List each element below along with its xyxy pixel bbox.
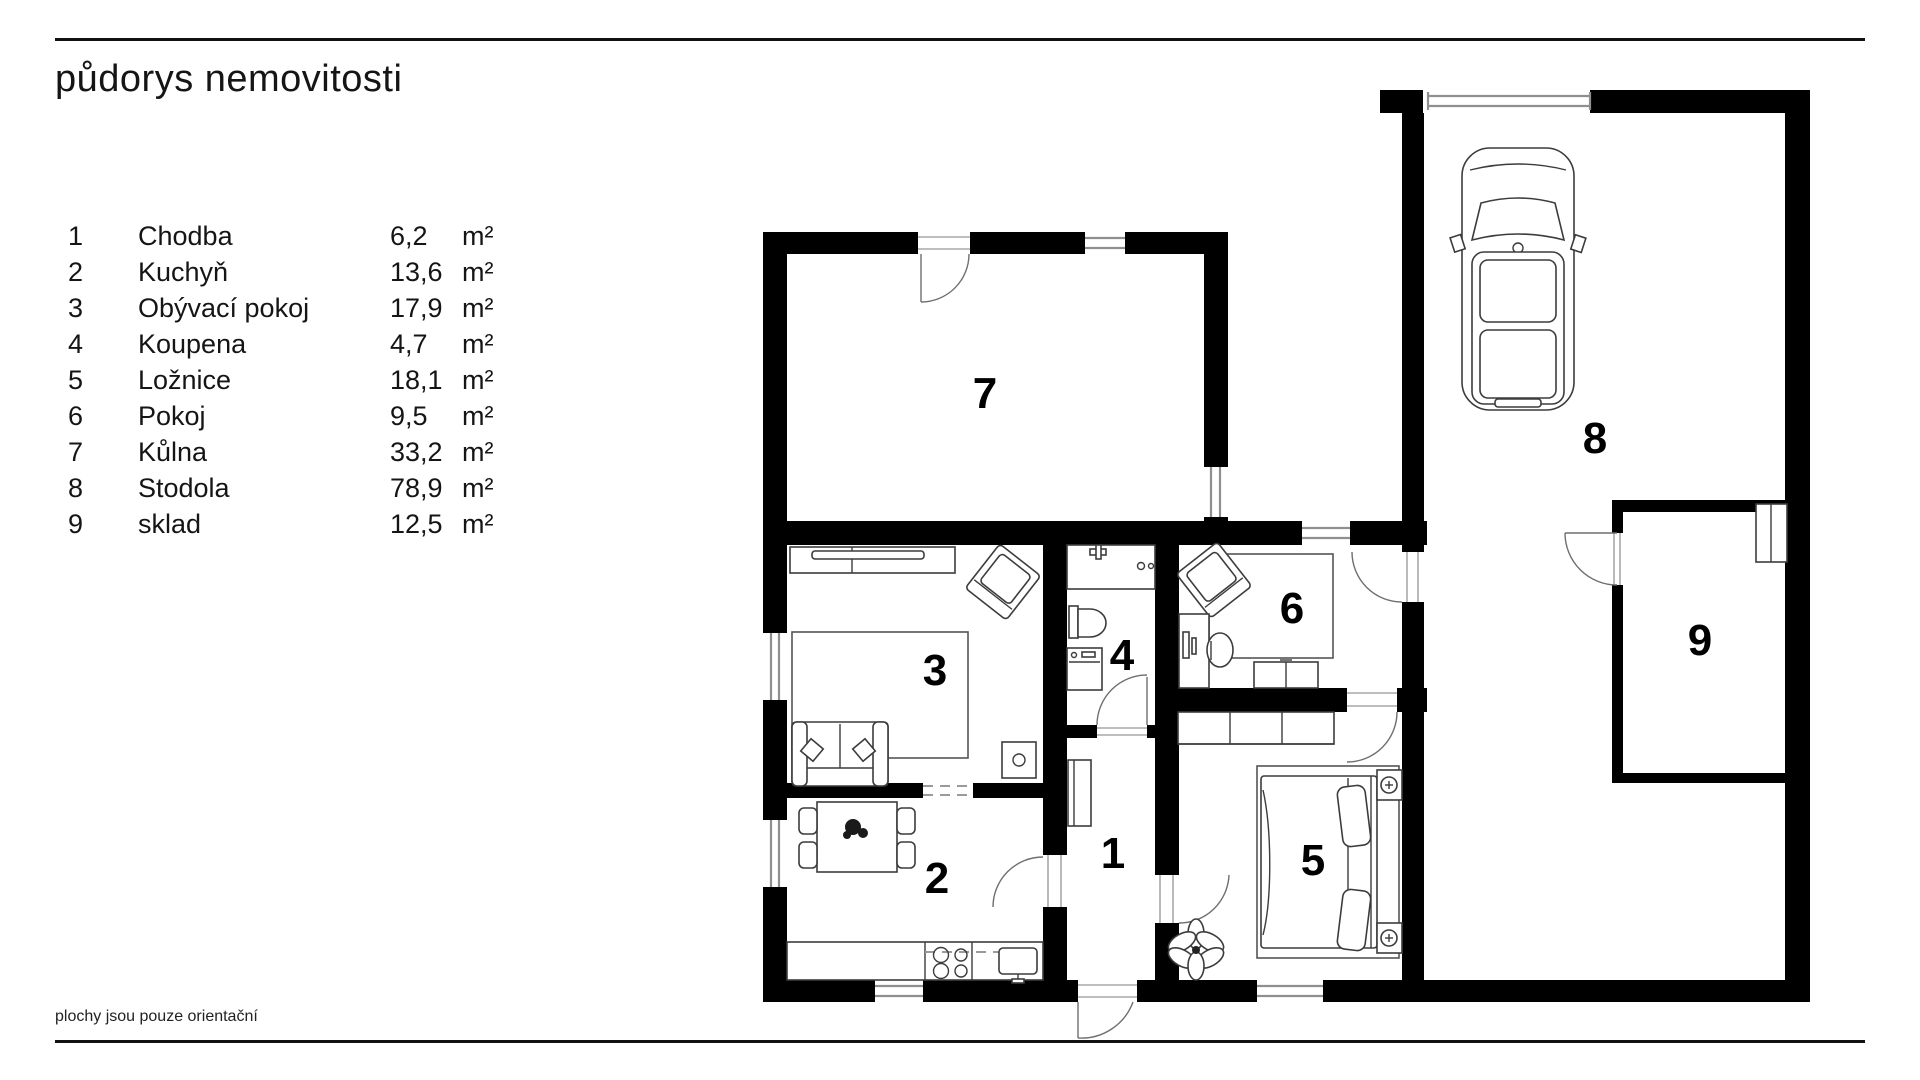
door-room7 [918,237,970,302]
walls-barn [1380,90,1810,1002]
room-label-9: 9 [1688,616,1712,665]
nightstand [1377,770,1402,800]
sofa [792,722,888,786]
toilet-icon [1069,606,1106,638]
room6-furniture [1176,542,1333,688]
nightstand [1377,923,1402,953]
stove-icon [1002,742,1036,778]
bedroom-furniture [1165,712,1402,980]
room-label-1: 1 [1101,829,1125,878]
room-label-3: 3 [923,646,947,695]
window-icon [1257,986,1323,996]
window-icon [1211,467,1220,517]
chest [1254,660,1318,688]
floor-plan: 1 2 3 4 5 6 7 8 9 [0,0,1920,1080]
armchair [965,544,1040,620]
window-icon [875,986,923,996]
living-room-furniture [790,544,1041,786]
window-icon [771,820,779,887]
storeroom-closet [1756,504,1787,562]
desk [1179,614,1209,688]
door-storeroom [1565,533,1620,585]
room-label-2: 2 [925,854,949,903]
washing-machine-icon [1067,648,1102,690]
bottom-rule [55,1040,1865,1043]
room-label-8: 8 [1583,414,1607,463]
door-kitchen [993,855,1061,907]
window-icon [1085,238,1125,248]
hallway-shelf [1068,760,1091,826]
window-icon [771,633,779,700]
window-icon [1302,528,1350,538]
door-bathroom [1097,675,1147,735]
wardrobe [1178,712,1334,744]
kitchen-furniture [787,802,1043,983]
office-chair [1207,633,1233,667]
footnote: plochy jsou pouze orientační [55,1008,258,1026]
door-entrance [1078,985,1137,1038]
dining-table [799,802,915,872]
open-passage [923,786,973,795]
kitchen-counter [787,942,1043,983]
door-bedroom [1160,875,1229,923]
room-label-6: 6 [1280,584,1304,633]
door-room6 [1352,552,1418,602]
sink-icon [1067,545,1155,589]
room-label-7: 7 [973,369,997,418]
room-label-5: 5 [1301,836,1325,885]
room-label-4: 4 [1110,631,1135,680]
door-room5-top [1347,693,1397,762]
tv-sideboard [790,547,955,573]
barn-gate-icon [1428,92,1590,110]
car-icon [1450,148,1586,410]
